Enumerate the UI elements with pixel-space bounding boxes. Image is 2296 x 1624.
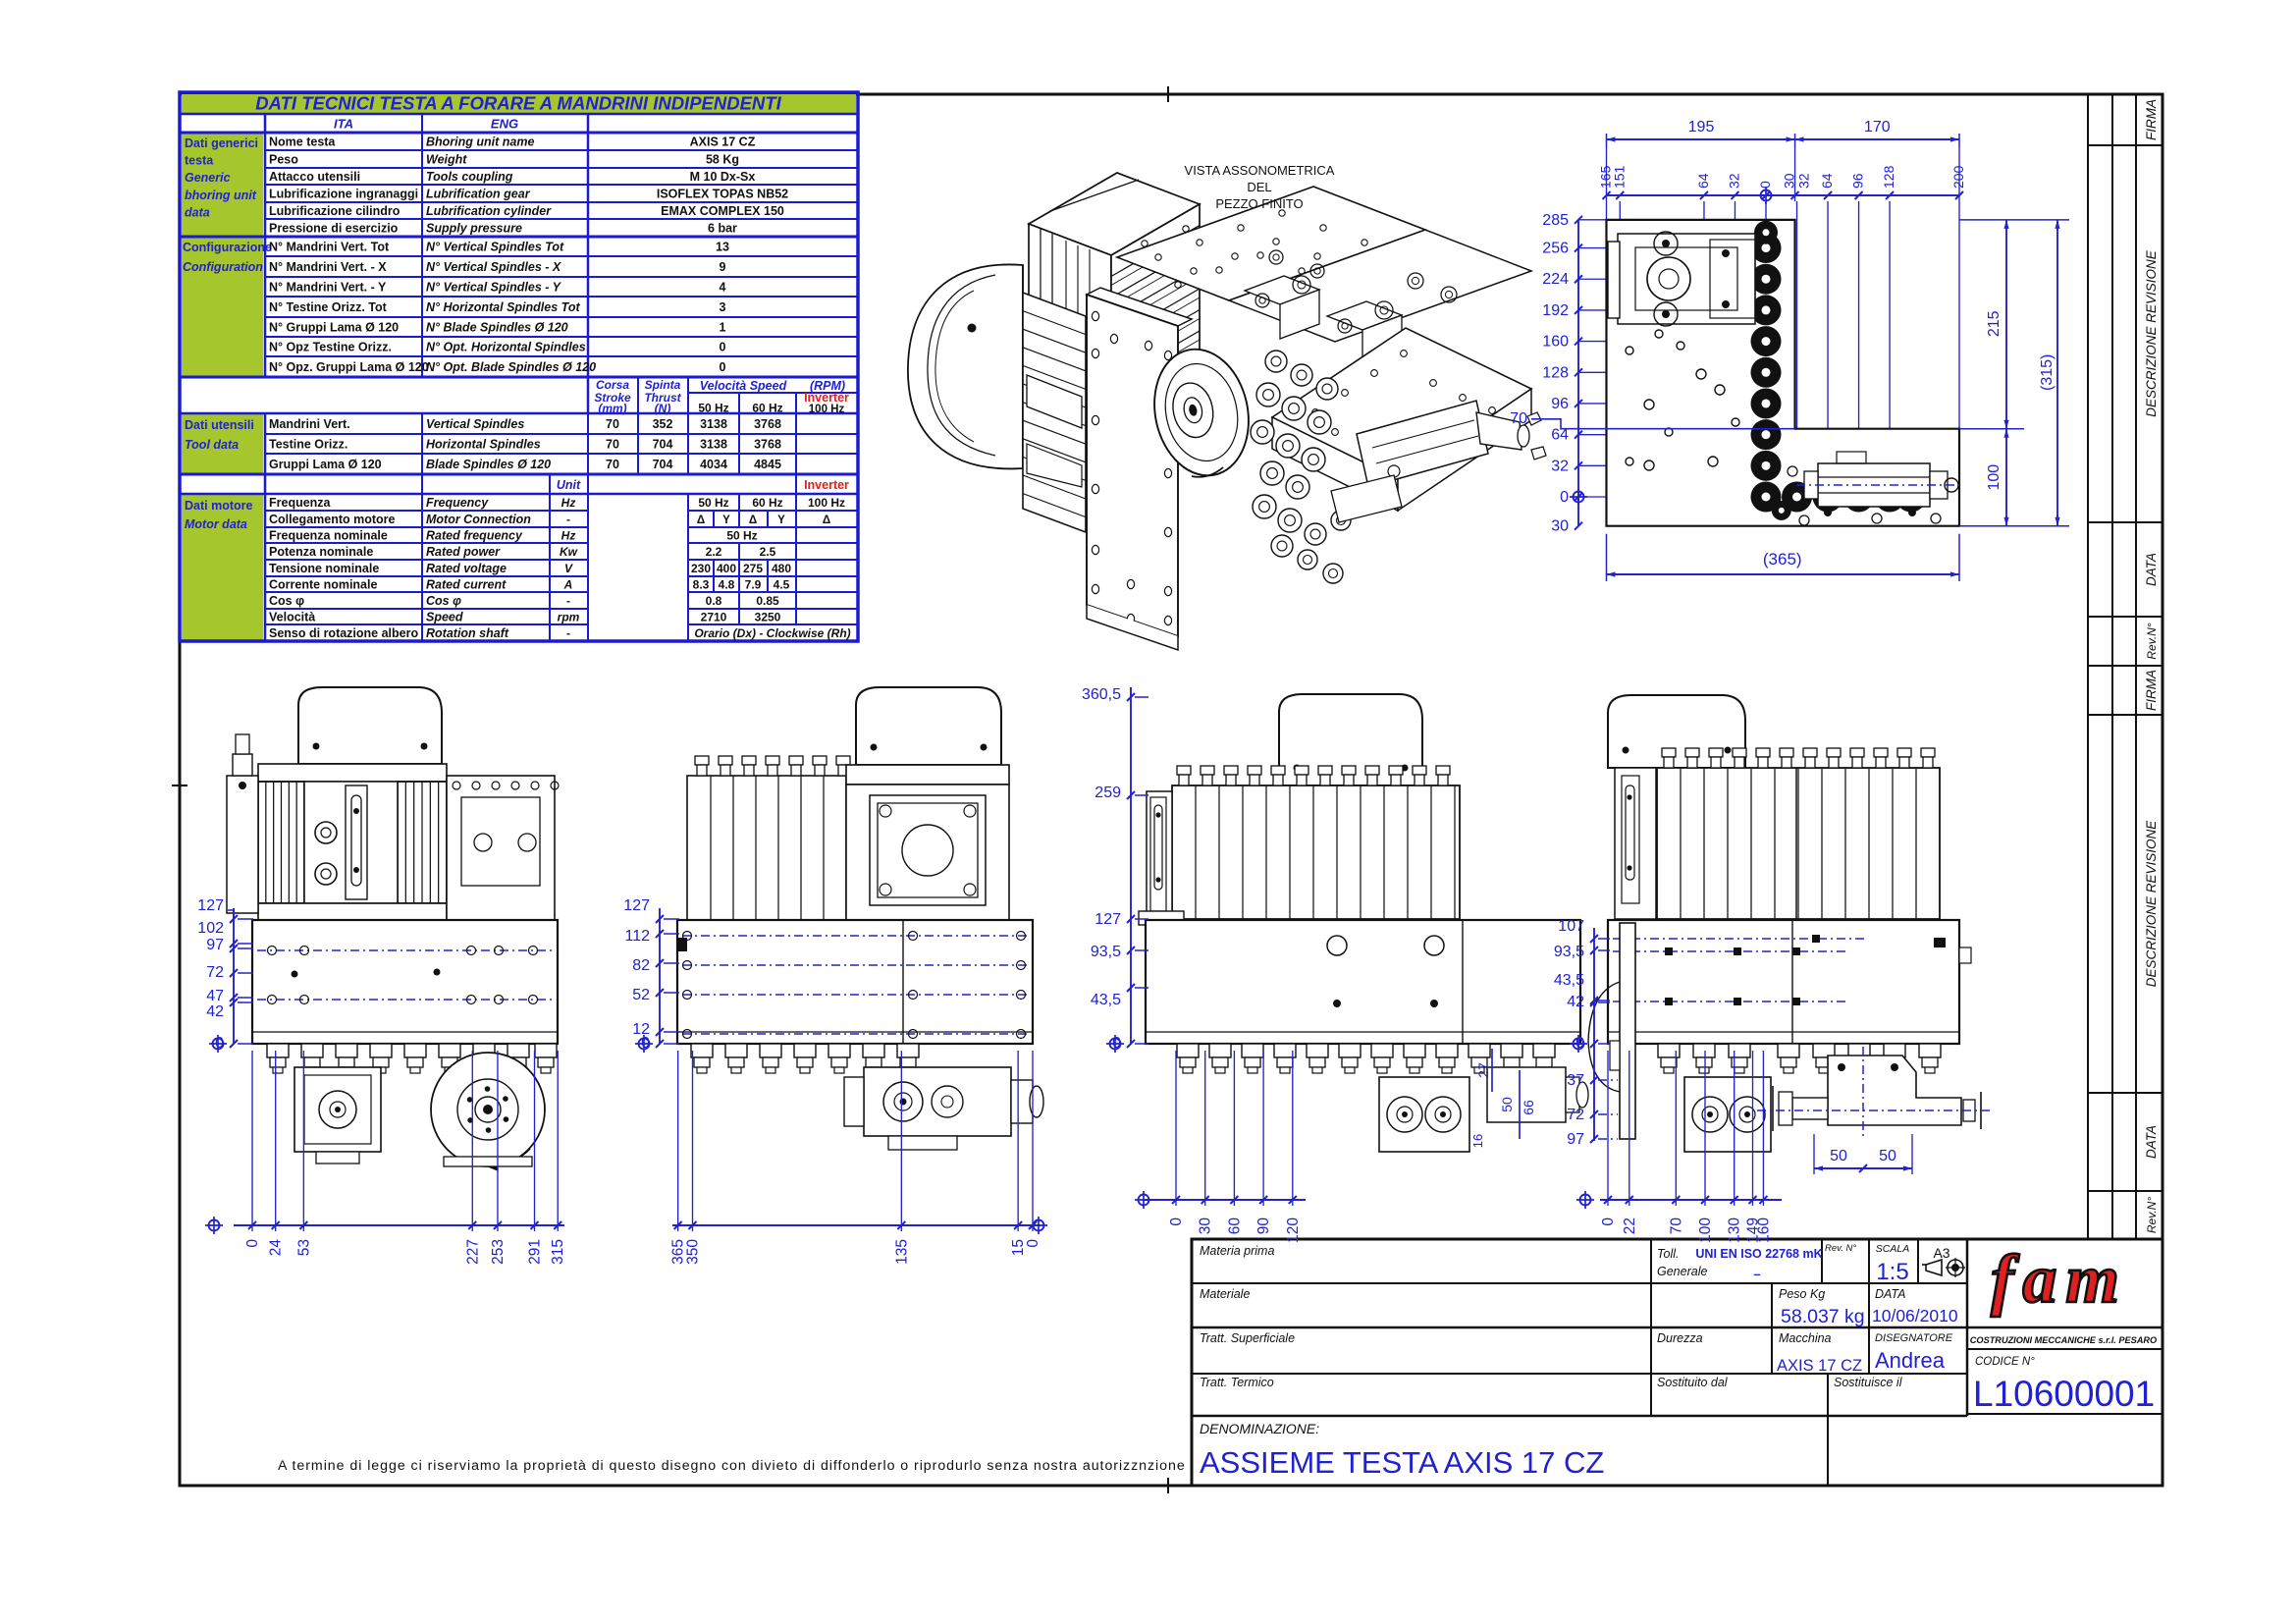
svg-text:151: 151 xyxy=(1611,165,1627,189)
svg-text:Kw: Kw xyxy=(560,545,578,559)
svg-text:Lubrification cylinder: Lubrification cylinder xyxy=(426,204,552,218)
svg-text:Frequency: Frequency xyxy=(426,496,489,510)
svg-text:Spinta: Spinta xyxy=(645,378,681,392)
svg-text:8.3: 8.3 xyxy=(693,578,710,592)
svg-text:Rated current: Rated current xyxy=(426,578,507,592)
svg-text:N° Opt. Blade Spindles Ø 120: N° Opt. Blade Spindles Ø 120 xyxy=(426,360,596,374)
svg-text:253: 253 xyxy=(490,1239,507,1265)
svg-text:N° Opt. Horizontal Spindles: N° Opt. Horizontal Spindles xyxy=(426,341,586,354)
svg-text:4.8: 4.8 xyxy=(719,578,735,592)
svg-text:N° Horizontal Spindles Tot: N° Horizontal Spindles Tot xyxy=(426,300,580,314)
svg-text:72: 72 xyxy=(1567,1107,1584,1123)
svg-text:50: 50 xyxy=(1499,1097,1515,1112)
svg-text:275: 275 xyxy=(743,562,763,575)
svg-text:N° Vertical Spindles Tot: N° Vertical Spindles Tot xyxy=(426,241,564,254)
svg-text:DESCRIZIONE REVISIONE: DESCRIZIONE REVISIONE xyxy=(2144,249,2159,417)
svg-text:FIRMA: FIRMA xyxy=(2144,670,2159,711)
svg-text:58 Kg: 58 Kg xyxy=(706,153,739,167)
svg-text:53: 53 xyxy=(295,1239,312,1256)
svg-text:170: 170 xyxy=(1864,119,1891,135)
svg-text:70: 70 xyxy=(606,438,619,452)
svg-text:ISOFLEX TOPAS NB52: ISOFLEX TOPAS NB52 xyxy=(657,188,788,201)
svg-text:Δ: Δ xyxy=(749,514,757,526)
svg-text:135: 135 xyxy=(893,1239,910,1265)
svg-text:0.85: 0.85 xyxy=(756,594,779,608)
svg-text:Frequenza: Frequenza xyxy=(269,496,332,510)
svg-text:Lubrification gear: Lubrification gear xyxy=(426,188,531,201)
svg-text:Corrente nominale: Corrente nominale xyxy=(269,578,377,592)
svg-text:32: 32 xyxy=(1726,173,1741,189)
svg-text:Velocità Speed: Velocità Speed xyxy=(700,379,787,393)
svg-text:Potenza nominale: Potenza nominale xyxy=(269,545,373,559)
svg-text:10/06/2010: 10/06/2010 xyxy=(1872,1306,1958,1326)
svg-text:7.9: 7.9 xyxy=(745,578,762,592)
svg-text:100 Hz: 100 Hz xyxy=(808,496,845,510)
svg-text:32: 32 xyxy=(1551,458,1569,474)
svg-text:192: 192 xyxy=(1542,302,1569,319)
svg-text:0: 0 xyxy=(720,360,726,374)
svg-text:AXIS 17 CZ: AXIS 17 CZ xyxy=(1777,1357,1862,1375)
svg-text:30: 30 xyxy=(1551,518,1569,535)
svg-text:128: 128 xyxy=(1542,364,1569,381)
svg-text:(365): (365) xyxy=(1763,550,1802,568)
svg-text:60 Hz: 60 Hz xyxy=(752,402,782,415)
svg-text:30: 30 xyxy=(1198,1218,1214,1235)
svg-text:Testine Orizz.: Testine Orizz. xyxy=(269,438,347,452)
svg-text:224: 224 xyxy=(1542,271,1569,288)
svg-text:DATA: DATA xyxy=(2144,1125,2159,1159)
svg-text:Peso: Peso xyxy=(269,153,298,167)
svg-text:Generic: Generic xyxy=(185,171,231,185)
svg-text:A: A xyxy=(563,578,573,592)
svg-text:AXIS 17 CZ: AXIS 17 CZ xyxy=(690,135,756,149)
svg-text:Weight: Weight xyxy=(426,153,467,167)
svg-text:Configuration: Configuration xyxy=(183,260,263,274)
svg-text:50 Hz: 50 Hz xyxy=(726,529,757,543)
svg-text:Motor Connection: Motor Connection xyxy=(426,513,531,526)
svg-text:43,5: 43,5 xyxy=(1091,992,1121,1008)
svg-text:Velocità: Velocità xyxy=(269,611,315,624)
svg-text:N° Mandrini Vert. - X: N° Mandrini Vert. - X xyxy=(269,260,387,274)
svg-text:127: 127 xyxy=(623,897,650,914)
svg-text:93,5: 93,5 xyxy=(1554,944,1584,960)
svg-text:Lubrificazione cilindro: Lubrificazione cilindro xyxy=(269,204,400,218)
svg-text:Rev. N°: Rev. N° xyxy=(1825,1243,1856,1254)
svg-text:50 Hz: 50 Hz xyxy=(698,496,728,510)
svg-text:DATI TECNICI TESTA A FORARE A: DATI TECNICI TESTA A FORARE A MANDRINI I… xyxy=(255,93,781,114)
svg-text:259: 259 xyxy=(1095,785,1121,801)
svg-text:Tratt. Termico: Tratt. Termico xyxy=(1200,1376,1274,1389)
svg-text:N° Blade Spindles Ø 120: N° Blade Spindles Ø 120 xyxy=(426,321,568,335)
svg-text:400: 400 xyxy=(717,562,736,575)
svg-text:50 Hz: 50 Hz xyxy=(698,402,728,415)
svg-text:128: 128 xyxy=(1881,165,1896,189)
svg-text:Mandrini Vert.: Mandrini Vert. xyxy=(269,417,350,431)
svg-text:2710: 2710 xyxy=(701,611,727,624)
svg-text:VISTA ASSONOMETRICA: VISTA ASSONOMETRICA xyxy=(1185,163,1335,178)
svg-text:70: 70 xyxy=(1668,1218,1684,1235)
svg-text:24: 24 xyxy=(268,1239,285,1257)
svg-text:Rated frequency: Rated frequency xyxy=(426,529,523,543)
svg-text:43,5: 43,5 xyxy=(1554,972,1584,989)
svg-text:DISEGNATORE: DISEGNATORE xyxy=(1875,1332,1953,1344)
svg-text:Dati motore: Dati motore xyxy=(185,499,253,513)
svg-text:102: 102 xyxy=(197,920,224,937)
svg-text:0: 0 xyxy=(1600,1218,1617,1226)
svg-text:rpm: rpm xyxy=(558,611,580,624)
svg-text:SCALA: SCALA xyxy=(1876,1243,1909,1255)
svg-text:Configurazione: Configurazione xyxy=(183,241,272,254)
svg-text:Motor data: Motor data xyxy=(185,517,247,531)
svg-text:90: 90 xyxy=(1255,1218,1272,1235)
svg-text:130: 130 xyxy=(1727,1218,1743,1243)
svg-text:Speed: Speed xyxy=(426,611,463,624)
svg-text:Tensione nominale: Tensione nominale xyxy=(269,562,379,575)
svg-text:Materia prima: Materia prima xyxy=(1200,1244,1274,1258)
svg-text:52: 52 xyxy=(632,987,650,1003)
svg-text:N° Opz. Gruppi Lama Ø 120: N° Opz. Gruppi Lama Ø 120 xyxy=(269,360,429,374)
svg-text:100 Hz: 100 Hz xyxy=(809,404,845,415)
svg-text:60 Hz: 60 Hz xyxy=(752,496,782,510)
svg-text:47: 47 xyxy=(206,988,224,1004)
svg-text:70: 70 xyxy=(606,417,619,431)
svg-text:3768: 3768 xyxy=(754,417,781,431)
svg-text:1: 1 xyxy=(720,321,726,335)
svg-text:Tool data: Tool data xyxy=(185,438,239,452)
svg-text:42: 42 xyxy=(1567,994,1584,1010)
svg-text:70: 70 xyxy=(1510,410,1527,427)
svg-text:96: 96 xyxy=(1850,173,1866,189)
svg-text:Toll.: Toll. xyxy=(1657,1247,1679,1261)
svg-text:3768: 3768 xyxy=(754,438,781,452)
svg-text:60: 60 xyxy=(1226,1218,1243,1235)
svg-text:Collegamento motore: Collegamento motore xyxy=(269,513,396,526)
svg-text:30: 30 xyxy=(1782,173,1797,189)
svg-text:195: 195 xyxy=(1688,119,1715,135)
svg-text:6 bar: 6 bar xyxy=(708,222,737,236)
svg-text:Bhoring unit name: Bhoring unit name xyxy=(426,135,534,149)
svg-text:COSTRUZIONI MECCANICHE s.r.l.: COSTRUZIONI MECCANICHE s.r.l. PESARO xyxy=(1970,1335,2157,1345)
svg-text:0: 0 xyxy=(1025,1239,1041,1248)
svg-text:50: 50 xyxy=(1879,1148,1896,1164)
svg-text:120: 120 xyxy=(1285,1218,1302,1243)
svg-text:160: 160 xyxy=(1542,334,1569,351)
svg-text:0: 0 xyxy=(244,1239,261,1248)
svg-text:Δ: Δ xyxy=(697,514,705,526)
svg-text:704: 704 xyxy=(653,438,673,452)
svg-text:97: 97 xyxy=(1567,1131,1584,1148)
svg-text:Sostituito dal: Sostituito dal xyxy=(1657,1376,1729,1389)
svg-text:(315): (315) xyxy=(2039,354,2056,391)
svg-text:Y: Y xyxy=(722,514,730,526)
svg-text:72: 72 xyxy=(206,964,224,981)
svg-text:Attacco utensili: Attacco utensili xyxy=(269,170,360,184)
svg-text:Gruppi Lama Ø 120: Gruppi Lama Ø 120 xyxy=(269,458,382,471)
svg-text:480: 480 xyxy=(772,562,791,575)
svg-text:315: 315 xyxy=(550,1239,566,1265)
svg-text:Dati utensili: Dati utensili xyxy=(185,418,254,432)
svg-text:2.5: 2.5 xyxy=(760,545,776,559)
svg-text:352: 352 xyxy=(653,417,673,431)
svg-text:(mm): (mm) xyxy=(598,402,626,415)
svg-text:100: 100 xyxy=(1697,1218,1714,1243)
svg-text:N° Vertical Spindles - X: N° Vertical Spindles - X xyxy=(426,260,561,274)
svg-text:Horizontal Spindles: Horizontal Spindles xyxy=(426,438,541,452)
svg-text:Peso Kg: Peso Kg xyxy=(1779,1287,1825,1301)
svg-text:Rated voltage: Rated voltage xyxy=(426,562,507,575)
svg-text:FIRMA: FIRMA xyxy=(2144,99,2159,140)
svg-text:704: 704 xyxy=(653,458,673,471)
svg-text:64: 64 xyxy=(1819,173,1835,189)
svg-text:Blade Spindles Ø 120: Blade Spindles Ø 120 xyxy=(426,458,551,471)
svg-text:ENG: ENG xyxy=(491,117,518,132)
svg-text:L10600001: L10600001 xyxy=(1973,1374,2155,1414)
svg-text:CODICE N°: CODICE N° xyxy=(1975,1356,2035,1368)
svg-text:0: 0 xyxy=(720,341,726,354)
svg-text:2.2: 2.2 xyxy=(706,545,722,559)
svg-text:107: 107 xyxy=(1558,918,1584,935)
svg-text:N° Vertical Spindles - Y: N° Vertical Spindles - Y xyxy=(426,281,562,295)
svg-text:0: 0 xyxy=(1560,489,1569,506)
svg-text:Durezza: Durezza xyxy=(1657,1331,1703,1345)
svg-text:50: 50 xyxy=(1830,1148,1847,1164)
svg-text:Sostituisce il: Sostituisce il xyxy=(1834,1376,1903,1389)
svg-text:3138: 3138 xyxy=(700,438,727,452)
svg-text:Inverter: Inverter xyxy=(804,391,849,405)
svg-text:ASSIEME TESTA AXIS 17 CZ: ASSIEME TESTA AXIS 17 CZ xyxy=(1200,1445,1604,1480)
svg-text:Hz: Hz xyxy=(561,496,576,510)
svg-text:37: 37 xyxy=(1567,1072,1584,1089)
svg-text:A termine di legge ci rise: A termine di legge ci riserviamo la prop… xyxy=(278,1458,1186,1474)
svg-text:127: 127 xyxy=(1095,911,1121,928)
svg-text:Y: Y xyxy=(777,514,785,526)
svg-text:256: 256 xyxy=(1542,241,1569,257)
svg-text:360,5: 360,5 xyxy=(1082,686,1121,703)
svg-text:Δ: Δ xyxy=(823,514,830,526)
svg-text:0: 0 xyxy=(1757,181,1773,189)
svg-text:93,5: 93,5 xyxy=(1091,944,1121,960)
svg-text:Senso di rotazione albero: Senso di rotazione albero xyxy=(269,626,418,640)
svg-text:DESCRIZIONE REVISIONE: DESCRIZIONE REVISIONE xyxy=(2144,820,2159,988)
svg-text:Inverter: Inverter xyxy=(804,478,849,492)
svg-text:ITA: ITA xyxy=(334,117,353,132)
svg-text:22: 22 xyxy=(1622,1218,1638,1234)
svg-text:13: 13 xyxy=(716,241,729,254)
svg-text:Hz: Hz xyxy=(561,529,576,543)
svg-text:Cos φ: Cos φ xyxy=(269,594,304,608)
svg-text:Rated power: Rated power xyxy=(426,545,501,559)
svg-text:285: 285 xyxy=(1542,212,1569,229)
svg-text:16: 16 xyxy=(1470,1134,1485,1148)
svg-text:Generale: Generale xyxy=(1657,1265,1707,1278)
svg-text:82: 82 xyxy=(632,957,650,974)
svg-text:-: - xyxy=(566,513,570,526)
svg-text:350: 350 xyxy=(685,1239,702,1265)
svg-text:EMAX COMPLEX 150: EMAX COMPLEX 150 xyxy=(661,204,784,218)
svg-text:Rev.N°: Rev.N° xyxy=(2145,623,2159,659)
svg-text:N° Opz Testine Orizz.: N° Opz Testine Orizz. xyxy=(269,341,392,354)
svg-text:200: 200 xyxy=(1950,165,1966,189)
svg-text:64: 64 xyxy=(1695,173,1711,189)
svg-text:1:5: 1:5 xyxy=(1876,1259,1908,1285)
svg-text:-: - xyxy=(566,626,570,640)
svg-text:N° Testine Orizz. Tot: N° Testine Orizz. Tot xyxy=(269,300,388,314)
svg-text:230: 230 xyxy=(691,562,711,575)
svg-text:Corsa: Corsa xyxy=(596,378,629,392)
svg-text:Dati generici: Dati generici xyxy=(185,136,258,150)
svg-text:3250: 3250 xyxy=(755,611,781,624)
svg-text:Unit: Unit xyxy=(557,478,581,492)
svg-text:–: – xyxy=(1753,1267,1760,1281)
svg-text:215: 215 xyxy=(1986,310,2002,337)
svg-text:fam: fam xyxy=(1991,1242,2128,1318)
svg-text:Rev.N°: Rev.N° xyxy=(2145,1197,2159,1233)
svg-text:Tratt. Superficiale: Tratt. Superficiale xyxy=(1200,1331,1295,1345)
svg-text:Frequenza nominale: Frequenza nominale xyxy=(269,529,388,543)
svg-text:Rotation shaft: Rotation shaft xyxy=(426,626,509,640)
svg-text:Lubrificazione ingranaggi: Lubrificazione ingranaggi xyxy=(269,188,418,201)
svg-text:V: V xyxy=(564,562,573,575)
svg-text:127: 127 xyxy=(197,897,224,914)
svg-text:4034: 4034 xyxy=(700,458,727,471)
svg-text:PEZZO FINITO: PEZZO FINITO xyxy=(1215,196,1303,211)
svg-text:160: 160 xyxy=(1755,1218,1772,1243)
svg-text:A3: A3 xyxy=(1933,1245,1949,1261)
svg-text:DENOMINAZIONE:: DENOMINAZIONE: xyxy=(1200,1421,1319,1436)
svg-text:(N): (N) xyxy=(655,402,671,415)
svg-text:66: 66 xyxy=(1521,1100,1536,1115)
svg-text:32: 32 xyxy=(1795,173,1811,189)
svg-text:Macchina: Macchina xyxy=(1779,1331,1832,1345)
svg-text:Supply pressure: Supply pressure xyxy=(426,222,522,236)
svg-text:3138: 3138 xyxy=(700,417,727,431)
svg-text:bhoring unit: bhoring unit xyxy=(185,189,257,202)
svg-text:data: data xyxy=(185,205,210,219)
svg-text:DATA: DATA xyxy=(1875,1287,1905,1301)
svg-text:0.8: 0.8 xyxy=(706,594,722,608)
svg-text:9: 9 xyxy=(720,260,726,274)
svg-text:N° Mandrini Vert. Tot: N° Mandrini Vert. Tot xyxy=(269,241,390,254)
svg-text:227: 227 xyxy=(464,1239,481,1265)
svg-text:4845: 4845 xyxy=(754,458,781,471)
svg-text:Andrea: Andrea xyxy=(1875,1348,1946,1373)
svg-text:3: 3 xyxy=(720,300,726,314)
svg-text:UNI EN ISO 22768 mK: UNI EN ISO 22768 mK xyxy=(1695,1247,1822,1261)
svg-text:27: 27 xyxy=(1475,1062,1491,1078)
svg-text:4.5: 4.5 xyxy=(774,578,790,592)
svg-text:Tools coupling: Tools coupling xyxy=(426,170,513,184)
svg-text:Nome testa: Nome testa xyxy=(269,135,336,149)
svg-text:Pressione di esercizio: Pressione di esercizio xyxy=(269,222,399,236)
svg-text:96: 96 xyxy=(1551,396,1569,412)
svg-text:0: 0 xyxy=(1168,1218,1185,1226)
svg-text:Cos φ: Cos φ xyxy=(426,594,461,608)
svg-text:97: 97 xyxy=(206,937,224,953)
svg-text:112: 112 xyxy=(624,928,650,945)
svg-text:Vertical Spindles: Vertical Spindles xyxy=(426,417,524,431)
svg-text:100: 100 xyxy=(1986,464,2002,491)
svg-text:58.037 kg: 58.037 kg xyxy=(1781,1306,1865,1327)
svg-text:DATA: DATA xyxy=(2144,553,2159,586)
svg-text:N° Mandrini Vert. - Y: N° Mandrini Vert. - Y xyxy=(269,281,387,295)
svg-text:42: 42 xyxy=(206,1003,224,1020)
svg-text:70: 70 xyxy=(606,458,619,471)
svg-text:DEL: DEL xyxy=(1247,180,1271,194)
svg-text:-: - xyxy=(566,594,570,608)
svg-text:testa: testa xyxy=(185,154,214,168)
svg-text:Orario (Dx) - Clockwise (Rh): Orario (Dx) - Clockwise (Rh) xyxy=(694,626,850,640)
svg-text:Materiale: Materiale xyxy=(1200,1287,1250,1301)
svg-text:4: 4 xyxy=(720,281,726,295)
svg-text:N° Gruppi Lama Ø 120: N° Gruppi Lama Ø 120 xyxy=(269,321,399,335)
svg-text:M 10 Dx-Sx: M 10 Dx-Sx xyxy=(690,170,756,184)
svg-text:291: 291 xyxy=(527,1239,544,1265)
